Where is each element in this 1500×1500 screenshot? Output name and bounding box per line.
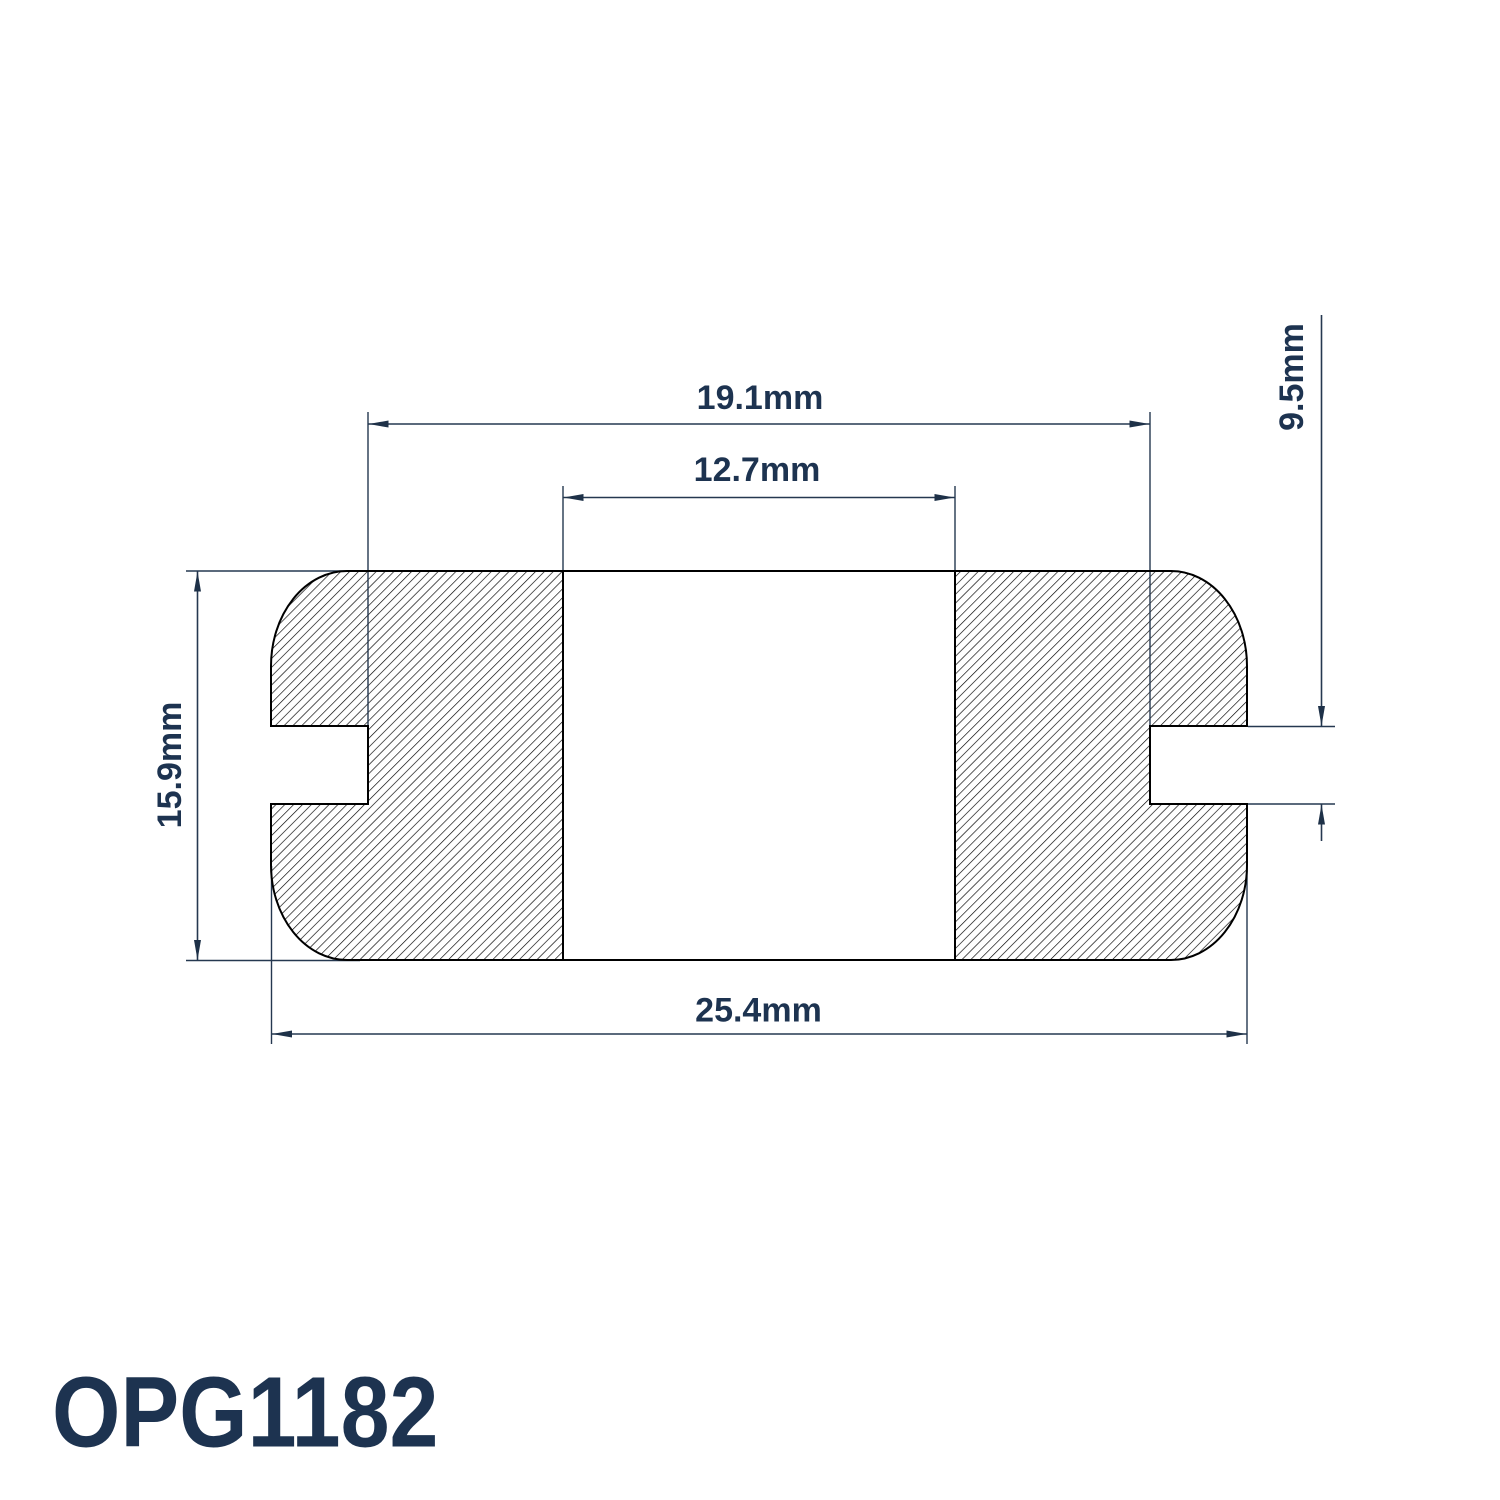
svg-text:19.1mm: 19.1mm: [697, 379, 824, 417]
svg-text:25.4mm: 25.4mm: [695, 992, 822, 1030]
svg-text:OPG1182: OPG1182: [52, 1356, 438, 1467]
svg-text:9.5mm: 9.5mm: [1273, 323, 1311, 431]
svg-text:12.7mm: 12.7mm: [694, 451, 821, 489]
svg-text:15.9mm: 15.9mm: [151, 702, 189, 829]
